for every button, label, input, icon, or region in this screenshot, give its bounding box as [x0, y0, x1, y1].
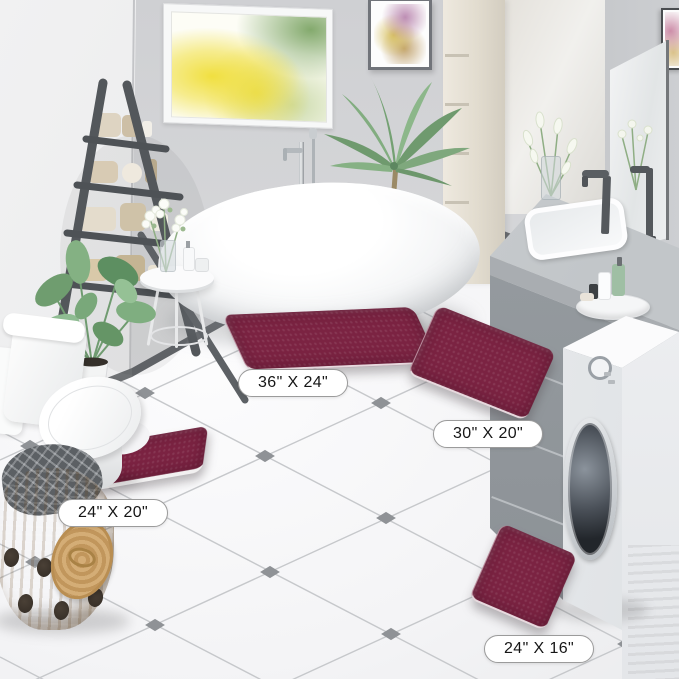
size-label-24x20: 24" X 20" — [58, 499, 168, 527]
wall-art-floral — [374, 4, 426, 64]
vanity-flower-vase — [541, 156, 561, 200]
washer-button — [608, 380, 615, 384]
wall-art-frame — [368, 0, 432, 70]
toiletry-bottle — [183, 247, 195, 271]
size-label-24x16: 24" X 16" — [484, 635, 594, 663]
washer-drum-window — [568, 423, 612, 555]
soap-dispenser-pump — [617, 257, 622, 266]
bath-mat-36x24 — [222, 307, 439, 371]
washer-door — [563, 418, 617, 560]
size-label-30x20: 30" X 20" — [433, 420, 543, 448]
soap-bar — [580, 293, 594, 301]
toiletry-bottle-pump — [186, 241, 190, 248]
toiletry-jar — [195, 258, 209, 272]
mirror-edge — [666, 40, 669, 240]
tub-faucet-drop — [283, 148, 287, 161]
bathroom-product-scene: 36" X 24" 30" X 20" 24" X 20" 24" X 16" — [0, 0, 679, 679]
soap-dispenser-green — [612, 264, 625, 296]
washer-knob — [588, 356, 612, 380]
tub-shower-wand-head — [309, 128, 317, 139]
lotion-bottle-white — [598, 272, 611, 300]
vanity-faucet-tip — [582, 176, 588, 187]
washer-button — [604, 372, 611, 376]
size-label-36x24: 36" X 24" — [238, 369, 348, 397]
